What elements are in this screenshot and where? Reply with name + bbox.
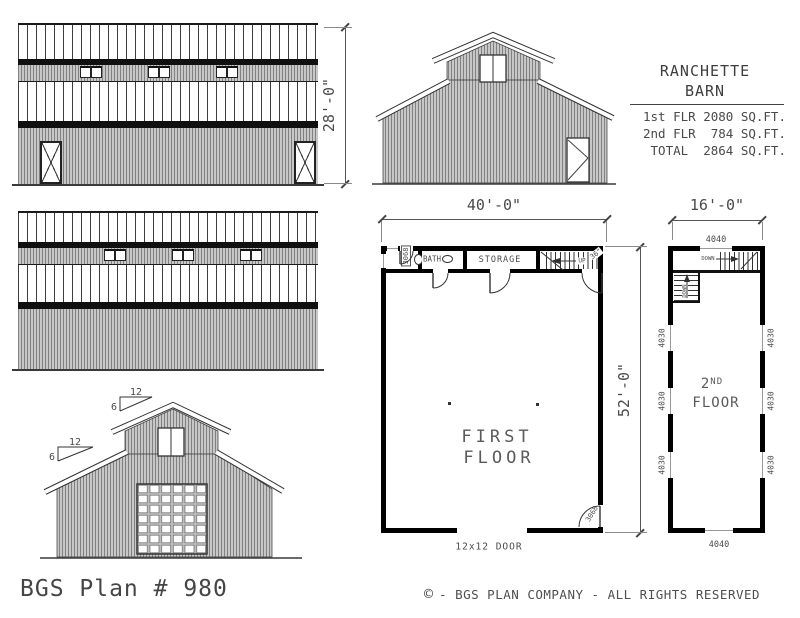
dim-label-ff-depth: 52'-0" [615,363,633,417]
clerestory-window-pair [240,249,262,261]
sink-symbol [442,255,453,263]
area-row-3: TOTAL 2864 SQ.FT. [622,142,788,159]
ff-wall-right [598,246,603,533]
sf-stair-treads-upper [720,252,760,270]
overhead-door-label: 12x12 DOOR [455,542,522,553]
ff-partition [510,269,582,273]
extension-line [606,221,607,242]
sf-stair-wall [673,301,700,303]
monitor-wall-band [18,65,318,81]
sf-window-side-label: 4030 [767,455,776,474]
front-gable-elevation: 12 6 12 6 [38,385,308,562]
plan-name-line2: BARN [622,82,788,100]
down-label-upper: DOWN [700,256,715,262]
ground-line [12,369,324,371]
dim-line-40 [382,219,607,220]
title-divider [630,104,784,105]
post-symbol [448,402,451,405]
shed-roof-band [18,81,318,121]
sf-window-side-label: 4030 [658,391,667,410]
main-wall-band [18,309,318,369]
title-block: RANCHETTE BARN 1st FLR 2080 SQ.FT. 2nd F… [622,62,788,159]
plan-name-line1: RANCHETTE [622,62,788,80]
copyright-line: © - BGS PLAN COMPANY - ALL RIGHTS RESERV… [424,585,760,603]
sf-window-side-label: 4030 [658,328,667,347]
blueprint-sheet: 12 6 12 6 RANCHETTE BARN 1st FLR 2080 SQ… [0,0,800,618]
sf-window-side-label: 4030 [658,455,667,474]
extension-line [324,27,352,28]
pitch-run-label: 12 [69,437,81,448]
down-label-lower: DOWN [682,284,688,297]
clerestory-window-pair [148,66,170,78]
sf-window-front-label: 4040 [704,235,728,245]
main-wall-band [18,128,318,184]
first-floor-title-line1: FIRST [461,427,532,447]
ff-partition [448,269,490,273]
dim-line-28 [345,27,346,184]
post-symbol [536,403,539,406]
plan-number-title: BGS Plan # 980 [20,576,228,602]
dim-line-52 [640,247,641,533]
ff-partition [463,251,467,269]
pitch-rise-label: 6 [111,402,117,413]
pitch-rise-label: 6 [49,452,55,463]
eave-shadow [18,121,318,128]
shed-roof-band [18,264,318,302]
ground-line [12,184,324,186]
second-floor-title-line2: FLOOR [692,395,739,411]
overhead-door [137,484,207,554]
storage-label: STORAGE [477,255,524,265]
side-elevation-1 [18,23,318,184]
monitor-roof-band [18,211,318,242]
pitch-run-label: 12 [130,387,142,398]
area-row-1: 1st FLR 2080 SQ.FT. [622,108,788,125]
extension-line [672,222,673,240]
ff-wall-left [381,246,386,533]
monitor-roof-band [18,23,318,59]
clerestory-window-pair [80,66,102,78]
second-floor-title-line1: 2ND [701,376,723,392]
sf-window-rear-label: 4040 [709,540,729,550]
dim-label-sf-width: 16'-0" [690,196,744,214]
ff-overhead-door-opening [457,528,527,533]
ff-wall-top [381,246,603,251]
area-row-2: 2nd FLR 784 SQ.FT. [622,125,788,142]
sf-stair-wall [673,270,760,273]
extension-line [605,246,647,247]
dim-line-16 [672,220,762,221]
rear-gable-elevation [370,26,620,188]
eave-shadow [18,302,318,309]
clerestory-window-pair [172,249,194,261]
dim-label-height: 28'-0" [320,78,338,132]
extension-line [762,222,763,240]
entry-door-label: 3068 [401,246,411,267]
extension-line [381,221,382,242]
sf-stair-wall [698,270,700,303]
clerestory-window-pair [216,66,238,78]
clerestory-window-pair [104,249,126,261]
side-elevation-2 [18,211,318,369]
copyright-icon: © [424,585,433,603]
ff-partition [536,251,540,269]
sf-window-side-label: 4030 [767,328,776,347]
monitor-wall-band [18,248,318,264]
x-brace-door [294,141,316,184]
pitch-triangle-lower: 12 6 [49,437,93,463]
first-floor-title-line2: FLOOR [463,448,534,468]
pitch-triangle-upper: 12 6 [111,387,152,413]
copyright-text: - BGS PLAN COMPANY - ALL RIGHTS RESERVED [439,587,760,602]
dim-label-ff-width: 40'-0" [467,196,521,214]
extension-line [605,532,647,533]
sf-window-side-label: 4030 [767,391,776,410]
extension-line [324,183,352,184]
bath-label: BATH [422,255,442,264]
up-label: UP [577,258,586,265]
x-brace-door [40,141,62,184]
ff-partition [386,269,433,273]
